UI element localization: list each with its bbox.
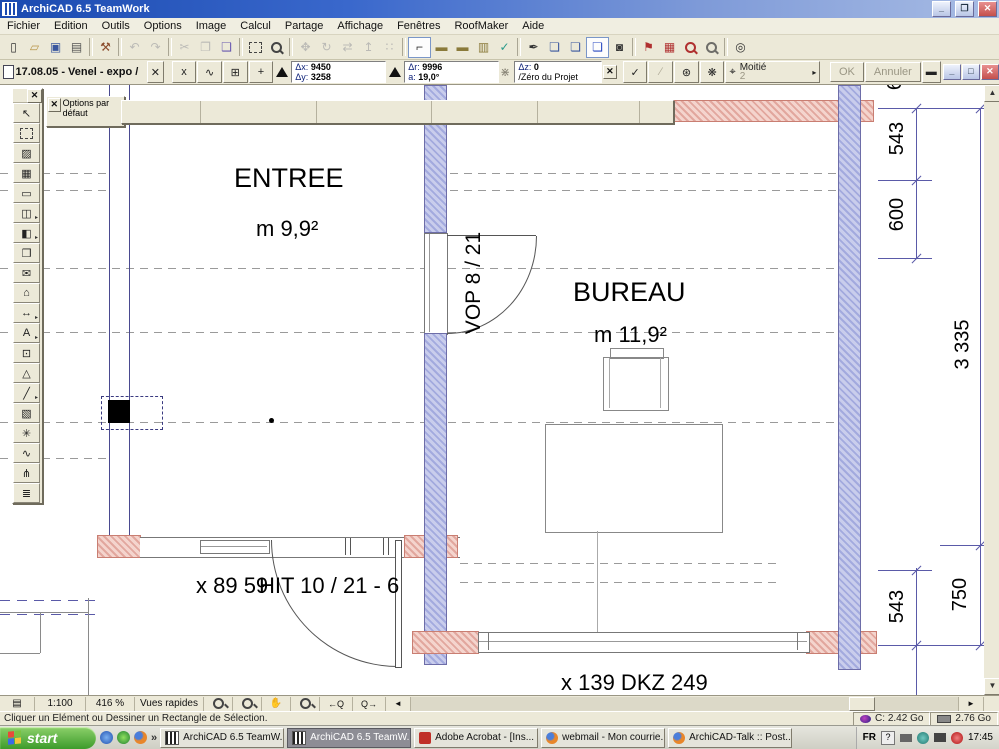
marquee-icon[interactable]: [245, 38, 266, 57]
disk-icon: [860, 715, 871, 723]
clock: 17:45: [968, 732, 993, 743]
roof-tool[interactable]: ⌂: [13, 283, 40, 303]
bottom-control-bar: ▤ 1:100 416 % Vues rapides ✋ ←Q Q→ ◄ ►: [0, 695, 999, 711]
ruler-icon[interactable]: ▤: [0, 697, 35, 711]
camera-tool[interactable]: ⋔: [13, 463, 40, 483]
title-bar: ArchiCAD 6.5 TeamWork _ ❐ ✕: [0, 0, 999, 18]
undo-icon[interactable]: ↶: [124, 38, 145, 57]
dimension-label[interactable]: 543: [886, 122, 909, 155]
trim-icon[interactable]: ⌐: [408, 37, 431, 58]
language-indicator[interactable]: FR: [863, 732, 876, 743]
door-label-vop[interactable]: VOP 8 / 21: [462, 223, 486, 343]
status-bar: Cliquer un Elément ou Dessiner un Rectan…: [0, 711, 999, 725]
door-label-hit[interactable]: HIT 10 / 21 - 6: [259, 573, 399, 599]
alert-tray-icon[interactable]: [951, 732, 963, 744]
display-tray-icon[interactable]: [934, 733, 946, 742]
column-display-icon[interactable]: ▥: [473, 38, 494, 57]
line-tool[interactable]: ╱▸: [13, 383, 40, 403]
palette-close-button[interactable]: ✕: [27, 89, 42, 103]
z-lock-icon: ⋇: [500, 65, 513, 79]
zoom-in-icon[interactable]: [204, 697, 233, 711]
menu-item-calcul[interactable]: Calcul: [233, 19, 278, 33]
delta-icon: [276, 67, 288, 77]
memory-chip-icon: [937, 715, 951, 723]
printer-tray-icon[interactable]: [900, 734, 912, 742]
dimension-line[interactable]: [916, 108, 917, 258]
scroll-up-button[interactable]: ▲: [984, 85, 999, 102]
door-leaf[interactable]: [395, 540, 402, 668]
search-icon[interactable]: [701, 38, 722, 57]
toolbar-separator: [89, 38, 93, 56]
wall-line: [88, 598, 89, 695]
restore-button[interactable]: ❐: [955, 1, 974, 17]
menu-item-fentres[interactable]: Fenêtres: [390, 19, 447, 33]
ra-coordinate-box[interactable]: Δr: 9996 a: 19,0°: [404, 61, 499, 83]
z-coordinate-box[interactable]: Δz: 0 /Zéro du Projet: [514, 61, 601, 83]
door-tool[interactable]: ◧▸: [13, 223, 40, 243]
gravity-button[interactable]: ⊛: [674, 61, 699, 83]
scale-button[interactable]: 1:100: [35, 697, 86, 711]
toolbar-separator: [239, 38, 243, 56]
right-wall[interactable]: [838, 85, 861, 670]
wall-tool[interactable]: ▨: [13, 143, 40, 163]
wall-display-icon[interactable]: ▬: [431, 38, 452, 57]
mirror-icon[interactable]: ⇄: [337, 38, 358, 57]
flyout-arrow-icon: ▸: [35, 214, 38, 221]
info-box-palette: ✕ Options par défaut: [46, 96, 125, 127]
zone-tool[interactable]: ⊡: [13, 343, 40, 363]
zoom-level-button[interactable]: 416 %: [86, 697, 135, 711]
taskbar-task[interactable]: ArchiCAD 6.5 TeamW...: [287, 728, 411, 748]
dashed-line: [0, 614, 95, 615]
flyout-arrow-icon: ▸: [35, 334, 38, 341]
infobox-close-button[interactable]: ✕: [48, 98, 61, 112]
left-wall-line[interactable]: [129, 85, 130, 537]
firefox-quicklaunch-icon[interactable]: [134, 731, 147, 744]
task-list: ArchiCAD 6.5 TeamW... ArchiCAD 6.5 TeamW…: [157, 728, 792, 748]
teamwork-changes-icon[interactable]: ❏: [586, 37, 609, 58]
redo-icon[interactable]: ↷: [145, 38, 166, 57]
main-toolbar: ▯▱▣▤⚒↶↷✂❐❑✥↻⇄↥∷⌐▬▬▥✓✒❏❏❏◙⚑▦◎: [0, 35, 999, 60]
fit-in-window-icon[interactable]: [291, 697, 320, 711]
hscroll-right-button[interactable]: ►: [958, 697, 984, 711]
dashed-line: [450, 190, 856, 191]
marquee-tool[interactable]: [13, 123, 40, 143]
taskbar: start » ArchiCAD 6.5 TeamW... ArchiCAD 6…: [0, 725, 999, 749]
info-box-strip[interactable]: [121, 100, 674, 124]
chair[interactable]: [603, 357, 669, 411]
selected-element[interactable]: [108, 400, 130, 423]
column-tool[interactable]: ▦: [13, 163, 40, 183]
window-title: ArchiCAD 6.5 TeamWork: [21, 3, 150, 15]
wall-line: [40, 612, 41, 653]
copy-icon[interactable]: ❐: [195, 38, 216, 57]
dashed-line: [460, 582, 780, 583]
hotspot-tool[interactable]: ✳: [13, 423, 40, 443]
copy-settings-icon[interactable]: ❏: [544, 38, 565, 57]
taskbar-task[interactable]: ArchiCAD 6.5 TeamW...: [160, 728, 284, 748]
tool-palette: ✕ ↖▨▦▭◫▸◧▸❒✉⌂↔▸A▸⊡△╱▸▧✳∿⋔≣: [12, 88, 43, 504]
wall-line: [0, 612, 88, 613]
delta-icon-2: [389, 67, 401, 77]
elevate-icon[interactable]: ↥: [358, 38, 379, 57]
menu-item-partage[interactable]: Partage: [278, 19, 331, 33]
window-label-dkz[interactable]: x 139 DKZ 249: [561, 670, 708, 695]
infobox-label: Options par défaut: [63, 98, 123, 125]
dimension-label[interactable]: 600: [886, 198, 909, 231]
snap-point-dropdown[interactable]: ⌖ Moitié 2 ▸: [725, 61, 820, 83]
figure-tool[interactable]: ▧: [13, 403, 40, 423]
rotate-icon[interactable]: ↻: [316, 38, 337, 57]
ie-quicklaunch-icon[interactable]: [100, 731, 113, 744]
relative-coords-button[interactable]: ✓: [623, 61, 648, 83]
system-tray: FR ? 17:45: [856, 727, 999, 749]
toolbar-separator: [724, 38, 728, 56]
slope-button[interactable]: ∕: [648, 61, 673, 83]
desktop: { "window": {"title": "ArchiCAD 6.5 Team…: [0, 0, 999, 749]
snap-icon: ⌖: [729, 66, 735, 79]
menu-item-aide[interactable]: Aide: [515, 19, 551, 33]
find-select-icon[interactable]: [680, 38, 701, 57]
multiply-icon[interactable]: ∷: [379, 38, 400, 57]
cut-icon[interactable]: ✂: [174, 38, 195, 57]
hotspot-dot[interactable]: [269, 418, 274, 423]
horizontal-scrollbar[interactable]: [411, 697, 958, 711]
wall-end[interactable]: [412, 631, 479, 654]
origin-selector[interactable]: /Zéro du Projet: [518, 72, 578, 82]
left-wall-line[interactable]: [109, 85, 110, 537]
window-bureau[interactable]: [478, 632, 810, 653]
toolbar-separator: [402, 38, 406, 56]
desk[interactable]: [545, 424, 723, 533]
dimension-line[interactable]: [980, 108, 981, 645]
stair-tool[interactable]: ≣: [13, 483, 40, 503]
doc-maximize-button[interactable]: □: [962, 64, 980, 80]
status-message: Cliquer un Elément ou Dessiner un Rectan…: [0, 713, 268, 724]
pane-close-button[interactable]: ✕: [147, 61, 164, 83]
room-label-bureau[interactable]: BUREAU: [573, 277, 686, 308]
text-tool[interactable]: A▸: [13, 323, 40, 343]
taskbar-task[interactable]: ArchiCAD-Talk :: Post...: [668, 728, 792, 748]
vop-swing-arc: [447, 236, 537, 334]
dashed-line: [450, 173, 856, 174]
disk-space-indicator: C: 2.42 Go: [853, 712, 930, 726]
cancel-button[interactable]: Annuler: [865, 62, 921, 82]
sync-tray-icon[interactable]: [917, 732, 929, 744]
mesh-tool[interactable]: △: [13, 363, 40, 383]
resize-grip[interactable]: [984, 696, 999, 711]
menu-item-options[interactable]: Options: [137, 19, 189, 33]
picture-tool[interactable]: ✉: [13, 263, 40, 283]
scroll-down-button[interactable]: ▼: [984, 678, 999, 695]
coordinate-bar: 17.08.05 - Venel - expo / ✕ x ∿ ⊞ + Δx: …: [0, 60, 999, 85]
start-button[interactable]: start: [0, 727, 96, 749]
memory-indicator: 2.76 Go: [930, 712, 998, 726]
toolbar-separator: [632, 38, 636, 56]
save-icon[interactable]: ▣: [45, 38, 66, 57]
paste-settings-icon[interactable]: ❏: [565, 38, 586, 57]
dashed-line: [0, 600, 95, 601]
menu-item-roofmaker[interactable]: RoofMaker: [447, 19, 515, 33]
app-icon: [2, 2, 17, 16]
paste-icon[interactable]: ❑: [216, 38, 237, 57]
xy-coordinate-box[interactable]: Δx: 9450 Δy: 3258: [291, 61, 386, 83]
origin-icon[interactable]: ◎: [730, 38, 751, 57]
print-icon[interactable]: ▤: [66, 38, 87, 57]
flyout-arrow-icon: ▸: [35, 314, 38, 321]
layers-icon[interactable]: ✓: [494, 38, 515, 57]
add-button[interactable]: +: [249, 61, 274, 83]
zoom-tool-icon[interactable]: [266, 38, 287, 57]
coord-close-button[interactable]: ✕: [603, 65, 617, 79]
teamwork-icon[interactable]: ⚒: [95, 38, 116, 57]
dimension-label[interactable]: 543: [886, 590, 909, 623]
object-tool[interactable]: ❒: [13, 243, 40, 263]
flyout-arrow-icon: ▸: [35, 234, 38, 241]
pickup-params-icon[interactable]: ✒: [523, 38, 544, 57]
dimension-label-partial: 6: [884, 85, 907, 90]
doc-close-button[interactable]: ✕: [981, 64, 999, 80]
beam-display-icon[interactable]: ▬: [452, 38, 473, 57]
messenger-quicklaunch-icon[interactable]: [117, 731, 130, 744]
menu-item-edition[interactable]: Edition: [47, 19, 95, 33]
dimension-label[interactable]: 3 335: [952, 319, 975, 369]
drawing-canvas[interactable]: 543 600 3 335 543 750 6 ENTREE m 9,9² BU…: [0, 85, 999, 695]
dimension-label[interactable]: 750: [949, 578, 972, 611]
hscroll-left-button[interactable]: ◄: [386, 697, 411, 711]
menu-item-outils[interactable]: Outils: [95, 19, 137, 33]
hscroll-thumb[interactable]: [849, 697, 875, 711]
dimension-line[interactable]: [916, 568, 917, 695]
markup-icon[interactable]: ⚑: [638, 38, 659, 57]
taskbar-task[interactable]: webmail - Mon courrie...: [541, 728, 665, 748]
central-wall-bottom[interactable]: [424, 333, 447, 665]
help-tray-icon[interactable]: ?: [881, 731, 895, 745]
toolbar-separator: [517, 38, 521, 56]
zoom-out-icon[interactable]: [233, 697, 262, 711]
wall-end[interactable]: [97, 535, 141, 558]
toolbar-separator: [118, 38, 122, 56]
menu-item-fichier[interactable]: Fichier: [0, 19, 47, 33]
ok-button[interactable]: OK: [830, 62, 864, 82]
taskbar-task[interactable]: Adobe Acrobat - [Ins...: [414, 728, 538, 748]
wall-line: [597, 531, 598, 632]
minimize-button[interactable]: _: [932, 1, 951, 17]
vop-door-frame[interactable]: [424, 233, 448, 335]
flyout-arrow-icon: ▸: [35, 394, 38, 401]
previous-zoom-button[interactable]: ←Q: [320, 697, 353, 711]
vertical-scrollbar[interactable]: ▲ ▼: [984, 85, 999, 695]
drag-icon[interactable]: ✥: [295, 38, 316, 57]
window-entree[interactable]: [200, 540, 270, 554]
chevron-right-icon: ▸: [812, 68, 816, 77]
pan-hand-icon[interactable]: ✋: [262, 697, 291, 711]
panel-toggle-button[interactable]: ▬: [922, 61, 941, 83]
menu-bar: FichierEditionOutilsOptionsImageCalculPa…: [0, 18, 999, 35]
room-area-entree[interactable]: m 9,9²: [256, 216, 318, 242]
document-icon: [3, 65, 14, 79]
wall-line: [0, 653, 40, 654]
new-icon[interactable]: ▯: [3, 38, 24, 57]
label-x8959[interactable]: x 89 59: [196, 573, 268, 599]
room-area-bureau[interactable]: m 11,9²: [594, 322, 667, 348]
follow-button[interactable]: ❋: [700, 61, 725, 83]
document-title: 17.08.05 - Venel - expo /: [15, 66, 145, 78]
menu-item-image[interactable]: Image: [189, 19, 234, 33]
close-button[interactable]: ✕: [978, 1, 997, 17]
coord-x-button[interactable]: x: [172, 61, 197, 83]
door-swing-arc: [271, 540, 398, 667]
window-tool[interactable]: ◫▸: [13, 203, 40, 223]
next-zoom-button[interactable]: Q→: [353, 697, 386, 711]
beam-tool[interactable]: ▭: [13, 183, 40, 203]
dimension-tool[interactable]: ↔▸: [13, 303, 40, 323]
grid-rotate-button[interactable]: ∿: [197, 61, 222, 83]
doc-minimize-button[interactable]: _: [943, 64, 961, 80]
quick-views-button[interactable]: Vues rapides: [135, 697, 204, 711]
windows-flag-icon: [8, 730, 22, 744]
toolbar-separator: [289, 38, 293, 56]
toolbox-icon[interactable]: ▦: [659, 38, 680, 57]
photo-icon[interactable]: ◙: [609, 38, 630, 57]
dashed-line: [460, 563, 780, 564]
open-icon[interactable]: ▱: [24, 38, 45, 57]
pointer-tool[interactable]: ↖: [13, 103, 40, 123]
room-label-entree[interactable]: ENTREE: [234, 163, 344, 194]
menu-item-affichage[interactable]: Affichage: [330, 19, 390, 33]
section-tool[interactable]: ∿: [13, 443, 40, 463]
toolbar-separator: [168, 38, 172, 56]
grid-snap-button[interactable]: ⊞: [223, 61, 248, 83]
